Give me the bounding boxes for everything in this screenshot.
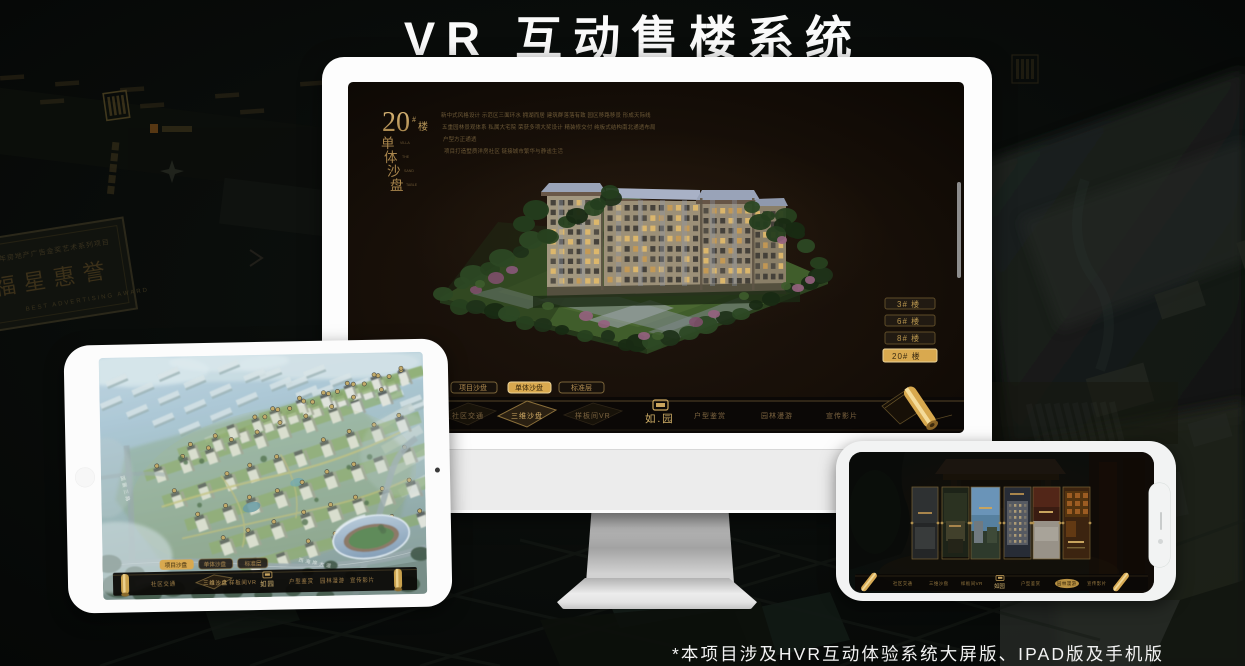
svg-text:标准层: 标准层 <box>571 383 592 392</box>
svg-text:如.园: 如.园 <box>645 412 675 425</box>
svg-text:体: 体 <box>384 150 398 165</box>
svg-text:户型方正通透: 户型方正通透 <box>443 135 477 143</box>
svg-text:五重园林景观体系 私属大宅院 荣获多项大奖设计 精装修交付: 五重园林景观体系 私属大宅院 荣获多项大奖设计 精装修交付 纯板式结构南北通透布… <box>442 123 656 131</box>
svg-text:单: 单 <box>381 136 395 151</box>
svg-text:TABLE: TABLE <box>406 183 418 187</box>
svg-text:户型鉴赏: 户型鉴赏 <box>1021 580 1041 587</box>
svg-text:宣传影片: 宣传影片 <box>826 411 858 420</box>
svg-text:样板间VR: 样板间VR <box>575 411 611 420</box>
svg-text:如园: 如园 <box>994 582 1005 590</box>
svg-text:THE: THE <box>402 155 410 159</box>
svg-text:三维沙盘: 三维沙盘 <box>929 580 949 587</box>
svg-text:宣传影片: 宣传影片 <box>1087 580 1107 587</box>
svg-text:楼: 楼 <box>418 120 428 133</box>
svg-text:户型鉴赏: 户型鉴赏 <box>694 411 726 420</box>
svg-text:8# 楼: 8# 楼 <box>897 333 920 343</box>
svg-text:单体沙盘: 单体沙盘 <box>515 383 543 392</box>
svg-text:社区交通: 社区交通 <box>452 411 484 420</box>
svg-text:沙: 沙 <box>387 164 401 179</box>
svg-text:园林漫游: 园林漫游 <box>761 411 793 420</box>
svg-text:20: 20 <box>382 107 410 138</box>
svg-text:#: # <box>412 115 416 124</box>
svg-text:VILLA: VILLA <box>400 141 410 145</box>
svg-text:6# 楼: 6# 楼 <box>897 316 920 326</box>
svg-text:SAND: SAND <box>404 169 414 173</box>
svg-text:新中式风格设计 示范区三面环水 拥湖而居 建筑群落落有致 园: 新中式风格设计 示范区三面环水 拥湖而居 建筑群落落有致 园区移路移景 形成天际… <box>441 111 651 119</box>
svg-text:如园: 如园 <box>260 579 275 588</box>
svg-text:盘: 盘 <box>390 177 404 193</box>
svg-text:样板间VR: 样板间VR <box>961 580 983 587</box>
svg-text:园林漫游: 园林漫游 <box>1057 580 1077 587</box>
svg-text:社区交通: 社区交通 <box>893 580 913 587</box>
svg-text:3# 楼: 3# 楼 <box>897 299 920 309</box>
svg-text:项目沙盘: 项目沙盘 <box>459 383 487 392</box>
svg-text:20# 楼: 20# 楼 <box>892 351 921 361</box>
svg-text:三维沙盘: 三维沙盘 <box>511 411 543 420</box>
